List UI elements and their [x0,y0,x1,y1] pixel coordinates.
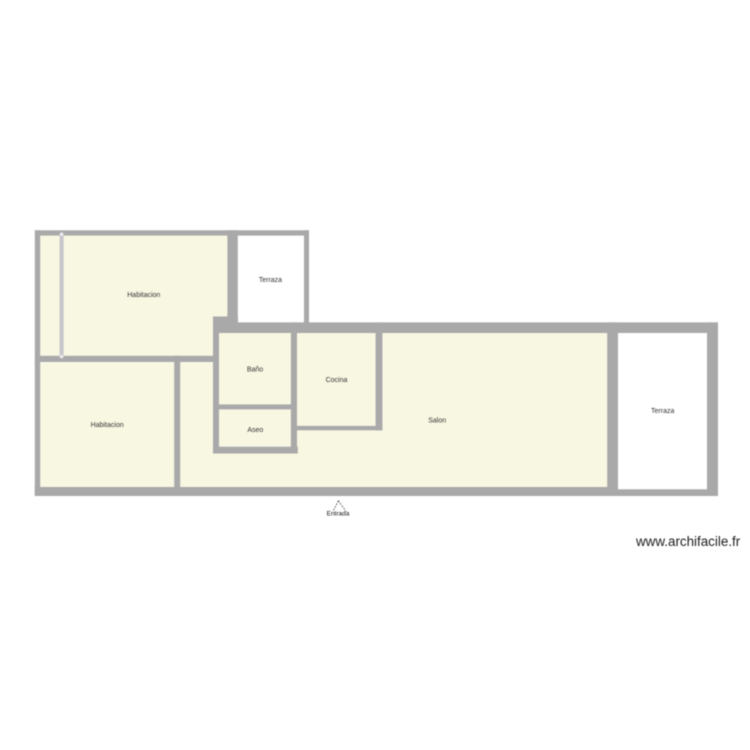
svg-text:Aseo: Aseo [247,427,263,434]
svg-text:Salon: Salon [428,417,446,424]
svg-text:Terraza: Terraza [651,408,674,415]
svg-text:www.archifacile.fr: www.archifacile.fr [635,534,741,549]
svg-text:Cocina: Cocina [326,377,348,384]
svg-text:Habitacion: Habitacion [127,292,160,299]
svg-text:Habitacion: Habitacion [91,422,124,429]
svg-text:Baño: Baño [247,367,263,374]
svg-text:Terraza: Terraza [259,277,282,284]
svg-text:Entrada: Entrada [327,511,350,518]
